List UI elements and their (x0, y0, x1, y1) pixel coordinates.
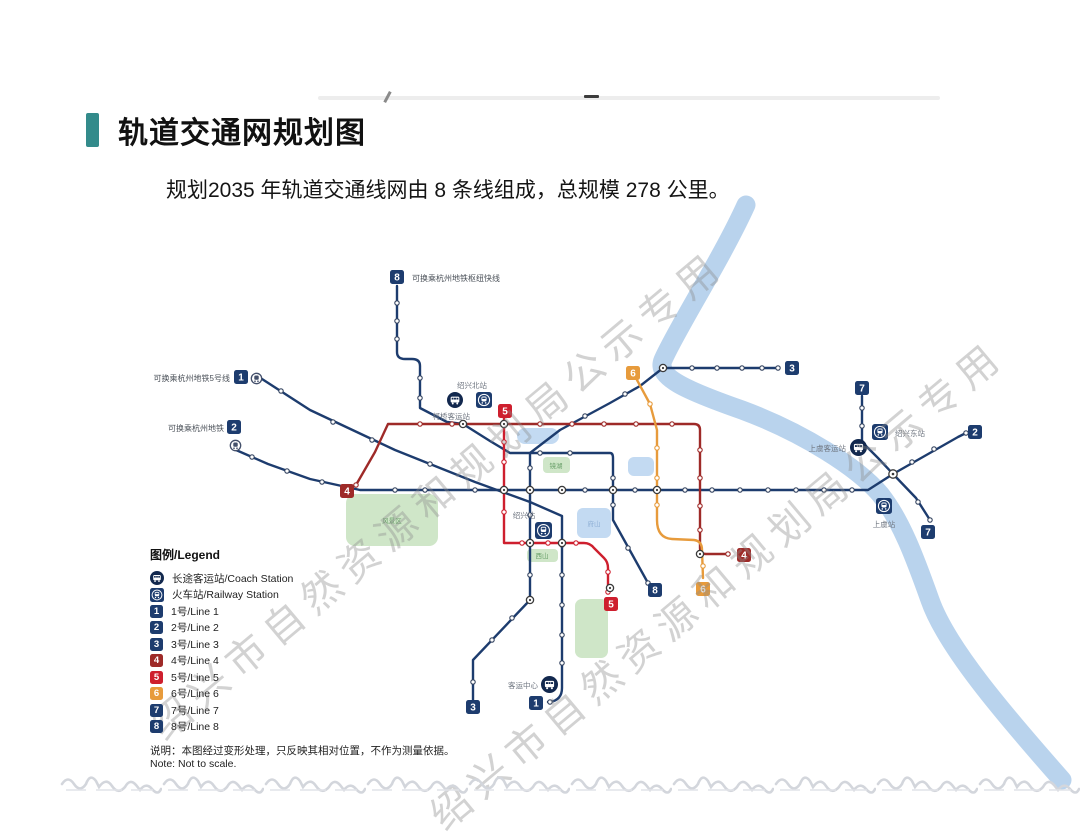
legend-line-row: 88号/Line 8 (150, 719, 450, 736)
legend-coach-row: 长途客运站/Coach Station (150, 570, 450, 587)
legend-line-row: 33号/Line 3 (150, 636, 450, 653)
svg-text:2: 2 (231, 423, 237, 434)
railway-station-icon (876, 498, 892, 514)
legend-line-row: 22号/Line 2 (150, 620, 450, 637)
line-6-badge-north: 6 (626, 366, 640, 380)
shangyu-coach-label: 上虞客运站 (809, 443, 847, 453)
svg-text:7: 7 (859, 384, 865, 395)
line-6-badge: 6 (150, 687, 163, 700)
legend-line-label: 4号/Line 4 (171, 653, 219, 668)
legend-railway-label: 火车站/Railway Station (172, 587, 279, 602)
legend-line-row: 77号/Line 7 (150, 702, 450, 719)
railway-station-icon (150, 588, 164, 602)
coach-station-icon (150, 571, 164, 585)
legend-line-row: 66号/Line 6 (150, 686, 450, 703)
scenic-area-label: 风景区 (382, 517, 402, 525)
line-4-badge-east: 4 (737, 548, 751, 562)
line-2-badge: 2 (150, 621, 163, 634)
shangyu-station-label: 上虞站 (873, 519, 896, 529)
keqiao-coach-label: 柯桥客运站 (433, 411, 471, 421)
legend-panel: 图例/Legend 长途客运站/Coach Station 火车站/Railwa… (150, 546, 450, 770)
line-5-badge: 5 (150, 671, 163, 684)
svg-text:6: 6 (630, 369, 636, 380)
map-note-en: Note: Not to scale. (150, 758, 450, 770)
legend-line-label: 8号/Line 8 (171, 719, 219, 734)
legend-coach-label: 长途客运站/Coach Station (172, 571, 293, 586)
line1-transfer-label: 可换乘杭州地铁5号线 (154, 373, 230, 383)
line-8-badge-north: 8 (390, 270, 404, 284)
jinghu-label: 镜湖 (550, 461, 564, 470)
svg-text:1: 1 (238, 373, 244, 384)
line-5-badge-north: 5 (498, 404, 512, 418)
line-4-badge: 4 (150, 654, 163, 667)
line-4-badge-west: 4 (340, 484, 354, 498)
legend-line-row: 11号/Line 1 (150, 603, 450, 620)
map-note-cn: 说明：本图经过变形处理，只反映其相对位置，不作为测量依据。 (150, 743, 580, 758)
coach-center-label: 客运中心 (508, 680, 538, 690)
railway-station-icon (476, 392, 492, 408)
line-7-badge: 7 (150, 704, 163, 717)
line2-transfer-label: 可换乘杭州地铁 (168, 423, 224, 433)
svg-text:4: 4 (741, 551, 747, 562)
line-1-badge: 1 (150, 605, 163, 618)
legend-line-label: 5号/Line 5 (171, 670, 219, 685)
legend-line-row: 44号/Line 4 (150, 653, 450, 670)
line-5-badge-south: 5 (604, 597, 618, 611)
line-2-badge-west: 2 (227, 420, 241, 434)
railway-transfer-icon (251, 373, 261, 383)
legend-line-label: 6号/Line 6 (171, 686, 219, 701)
legend-title: 图例/Legend (150, 546, 450, 563)
svg-text:1: 1 (533, 699, 539, 710)
svg-text:2: 2 (972, 428, 978, 439)
shaoxing-east-label: 绍兴东站 (895, 428, 925, 438)
railway-transfer-icon (230, 440, 240, 450)
line-3-badge: 3 (150, 638, 163, 651)
handwriting-scribble-band (60, 770, 1080, 794)
line-7-badge-south: 7 (921, 525, 935, 539)
line-8-badge: 8 (150, 720, 163, 733)
legend-line-label: 2号/Line 2 (171, 620, 219, 635)
svg-text:8: 8 (394, 273, 400, 284)
line-8-badge-south: 8 (648, 583, 662, 597)
line-6-badge-south: 6 (696, 582, 710, 596)
line-1-badge-south: 1 (529, 696, 543, 710)
legend-line-label: 3号/Line 3 (171, 637, 219, 652)
line8-transfer-label: 可换乘杭州地铁枢纽快线 (412, 273, 500, 283)
svg-text:6: 6 (700, 585, 706, 596)
svg-text:8: 8 (652, 586, 658, 597)
line-1-badge-west: 1 (234, 370, 248, 384)
svg-text:5: 5 (502, 407, 508, 418)
svg-text:5: 5 (608, 600, 614, 611)
river (662, 205, 1062, 780)
railway-station-icon (535, 522, 552, 539)
coach-station-icon (541, 676, 558, 693)
line-2-badge-east: 2 (968, 425, 982, 439)
svg-text:3: 3 (470, 703, 476, 714)
legend-railway-row: 火车站/Railway Station (150, 587, 450, 604)
shaoxing-station-label: 绍兴站 (513, 510, 536, 520)
railway-station-icon (872, 424, 888, 440)
svg-text:7: 7 (925, 528, 931, 539)
xishan-label: 西山 (536, 551, 549, 560)
legend-line-label: 1号/Line 1 (171, 604, 219, 619)
legend-line-row: 55号/Line 5 (150, 669, 450, 686)
line-6-path (637, 380, 703, 578)
svg-text:4: 4 (344, 487, 350, 498)
coach-station-icon (447, 392, 463, 408)
line-3-path (473, 368, 778, 700)
shaoxing-north-label: 绍兴北站 (457, 380, 487, 390)
legend-line-label: 7号/Line 7 (171, 703, 219, 718)
line-3-badge-east: 3 (785, 361, 799, 375)
fushan-label: 府山 (588, 519, 601, 528)
svg-text:3: 3 (789, 364, 795, 375)
line-7-badge-north: 7 (855, 381, 869, 395)
coach-station-icon (850, 439, 867, 456)
line-3-badge-south: 3 (466, 700, 480, 714)
